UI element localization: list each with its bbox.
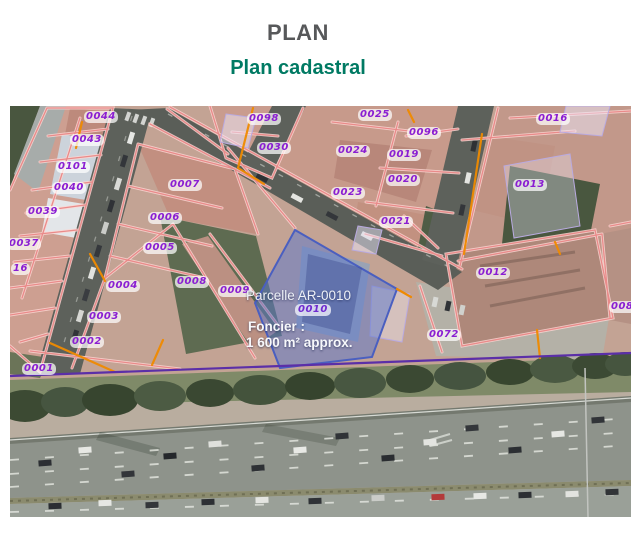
parcel-label-0040: 0040 — [52, 182, 86, 194]
page-title: PLAN — [0, 20, 596, 46]
parcel-label-0003: 0003 — [87, 311, 121, 323]
document-page: PLAN Plan cadastral — [0, 0, 640, 542]
parcel-label-0098: 0098 — [247, 113, 281, 125]
header: PLAN Plan cadastral — [0, 20, 596, 80]
parcel-label-partial-16: 16 — [11, 263, 30, 275]
parcel-label-0004: 0004 — [106, 280, 140, 292]
parcel-label-0024: 0024 — [336, 145, 370, 157]
parcel-label-0001: 0001 — [22, 363, 56, 375]
parcel-label-0044: 0044 — [84, 111, 118, 123]
parcel-label-0023: 0023 — [331, 187, 365, 199]
highlight-parcel-code: 0010 — [295, 304, 331, 316]
highlight-foncier-label: Foncier : — [248, 319, 305, 334]
parcel-label-0013: 0013 — [513, 179, 547, 191]
parcel-label-0025: 0025 — [358, 109, 392, 121]
parcel-label-0037: 0037 — [10, 238, 41, 250]
parcel-label-0021: 0021 — [379, 216, 413, 228]
parcel-label-0007: 0007 — [168, 179, 202, 191]
parcel-label-0020: 0020 — [386, 174, 420, 186]
parcel-label-0005: 0005 — [143, 242, 177, 254]
parcel-label-0002: 0002 — [70, 336, 104, 348]
parcel-label-0019: 0019 — [387, 149, 421, 161]
parcel-label-0006: 0006 — [148, 212, 182, 224]
parcel-label-0084: 0084 — [609, 301, 631, 313]
page-subtitle: Plan cadastral — [0, 57, 596, 80]
cadastral-map: 0044 0043 0101 0040 0039 0037 16 0004 00… — [10, 106, 631, 517]
parcel-label-0072: 0072 — [427, 329, 461, 341]
highlight-foncier-area: 1 600 m² approx. — [246, 335, 353, 350]
parcel-label-0039: 0039 — [26, 206, 60, 218]
parcel-label-0008: 0008 — [175, 276, 209, 288]
parcel-label-0096: 0096 — [407, 127, 441, 139]
highlight-parcel-title: Parcelle AR-0010 — [246, 288, 351, 303]
parcel-label-0016: 0016 — [536, 113, 570, 125]
parcel-label-0043: 0043 — [70, 134, 104, 146]
parcel-label-0030: 0030 — [257, 142, 291, 154]
parcel-label-0101: 0101 — [56, 161, 90, 173]
parcel-label-0012: 0012 — [476, 267, 510, 279]
